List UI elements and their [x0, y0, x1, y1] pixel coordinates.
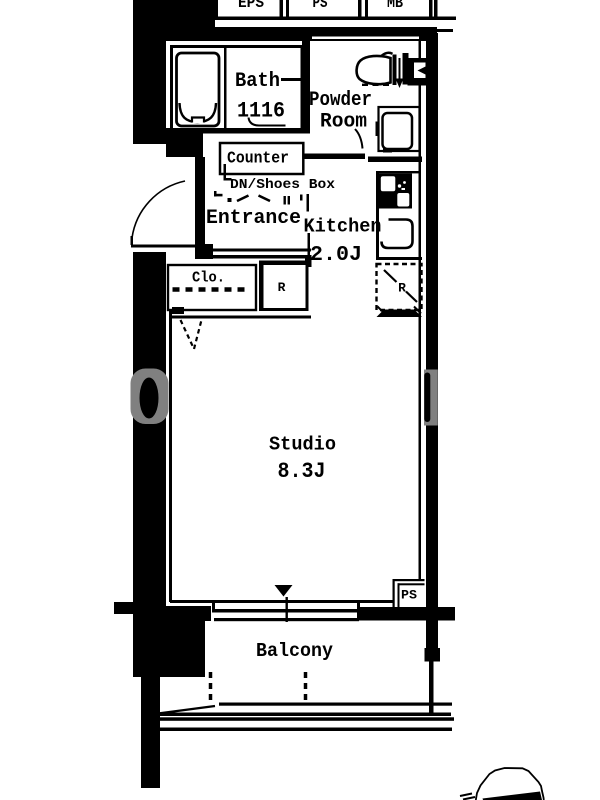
svg-text:8.3J: 8.3J	[278, 459, 326, 484]
svg-text:Studio: Studio	[269, 434, 336, 456]
svg-text:MB: MB	[387, 0, 403, 12]
svg-text:Bath: Bath	[235, 70, 280, 93]
svg-text:2.0J: 2.0J	[310, 244, 362, 267]
svg-text:Clo.: Clo.	[192, 271, 225, 287]
svg-text:1116: 1116	[237, 99, 285, 124]
svg-text:R: R	[398, 281, 406, 296]
svg-text:PS: PS	[401, 589, 418, 603]
svg-text:Room: Room	[320, 111, 367, 134]
svg-text:EPS: EPS	[238, 0, 264, 12]
svg-text:Counter: Counter	[227, 149, 289, 168]
svg-text:Powder: Powder	[309, 89, 372, 112]
svg-text:Kitchen: Kitchen	[304, 216, 382, 238]
svg-text:R: R	[278, 280, 286, 295]
svg-text:PS: PS	[313, 0, 328, 12]
svg-text:DN/Shoes Box: DN/Shoes Box	[230, 177, 336, 193]
svg-text:Balcony: Balcony	[256, 640, 333, 662]
svg-text:Entrance: Entrance	[206, 207, 301, 230]
